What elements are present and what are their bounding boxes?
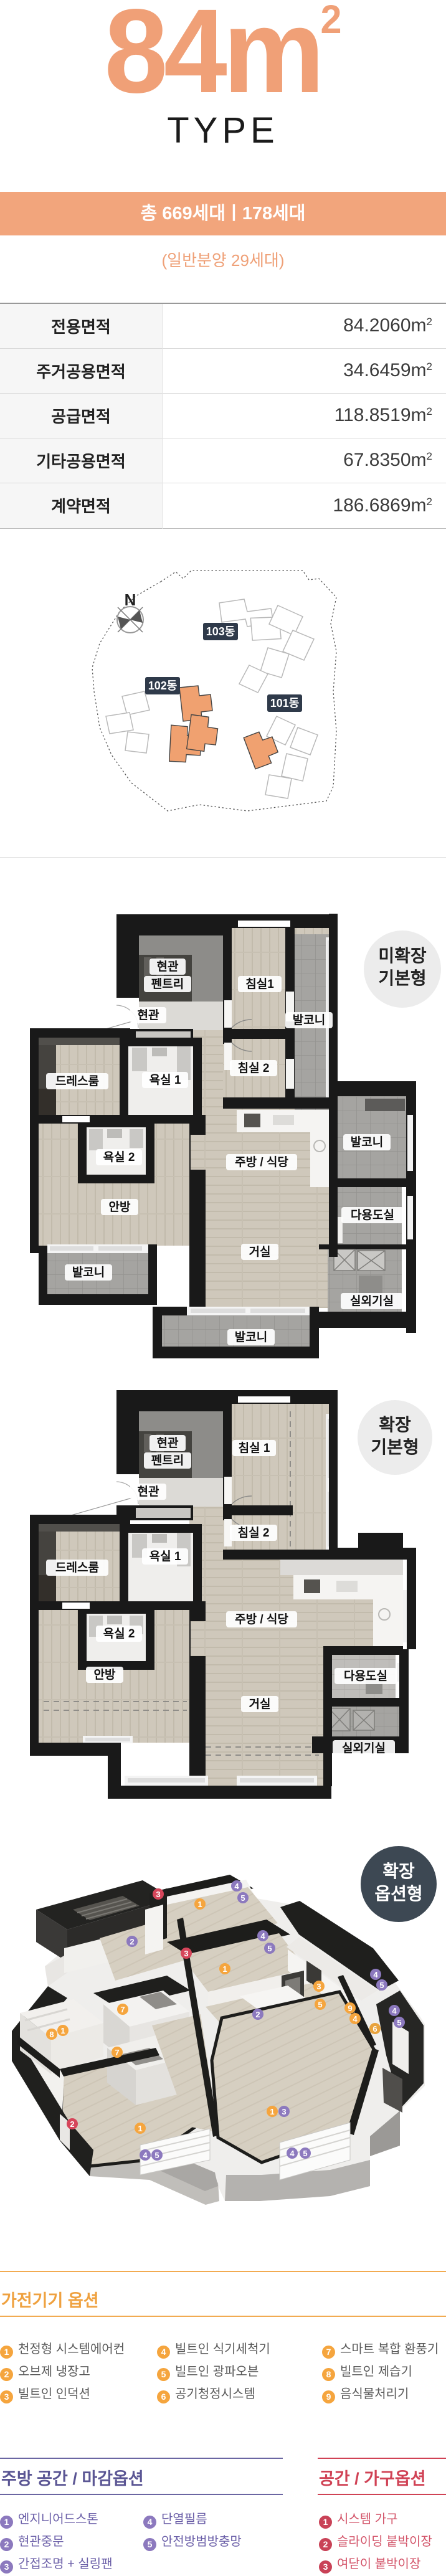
svg-text:실외기실: 실외기실 xyxy=(350,1294,394,1308)
svg-text:현관: 현관 xyxy=(138,1485,159,1499)
svg-text:6: 6 xyxy=(372,2024,377,2034)
svg-text:4: 4 xyxy=(373,1970,378,1979)
svg-text:3: 3 xyxy=(156,1890,160,1899)
svg-text:3: 3 xyxy=(282,2107,286,2116)
svg-text:101동: 101동 xyxy=(270,697,300,709)
svg-text:거실: 거실 xyxy=(249,1697,271,1711)
svg-text:1: 1 xyxy=(138,2124,142,2133)
svg-text:4: 4 xyxy=(290,2149,295,2158)
svg-text:2: 2 xyxy=(130,1937,134,1946)
svg-text:발코니: 발코니 xyxy=(72,1266,105,1279)
svg-text:1: 1 xyxy=(60,2026,65,2035)
svg-text:5: 5 xyxy=(267,1944,272,1953)
svg-text:침실 1: 침실 1 xyxy=(239,1441,270,1455)
svg-text:드레스룸: 드레스룸 xyxy=(55,1561,99,1574)
svg-text:침실 2: 침실 2 xyxy=(238,1061,270,1075)
svg-text:확장: 확장 xyxy=(382,1862,415,1881)
svg-text:8: 8 xyxy=(49,2030,54,2039)
svg-text:7: 7 xyxy=(115,2048,119,2057)
svg-text:발코니: 발코니 xyxy=(235,1330,267,1344)
svg-text:욕실 1: 욕실 1 xyxy=(149,1073,181,1087)
svg-text:5: 5 xyxy=(303,2149,307,2158)
svg-text:안방: 안방 xyxy=(94,1668,116,1682)
svg-text:확장: 확장 xyxy=(379,1415,411,1434)
svg-text:1: 1 xyxy=(270,2107,274,2116)
svg-text:1: 1 xyxy=(222,1964,227,1974)
svg-text:102동: 102동 xyxy=(148,680,178,692)
svg-text:4: 4 xyxy=(234,1882,239,1891)
svg-text:5: 5 xyxy=(379,1981,384,1990)
svg-text:3: 3 xyxy=(184,1949,188,1958)
svg-text:욕실 2: 욕실 2 xyxy=(103,1627,135,1641)
svg-text:현관: 현관 xyxy=(157,1436,179,1450)
svg-text:발코니: 발코니 xyxy=(351,1135,383,1149)
svg-text:펜트리: 펜트리 xyxy=(151,1454,184,1467)
svg-text:현관: 현관 xyxy=(138,1008,159,1022)
svg-text:4: 4 xyxy=(392,2006,397,2015)
svg-text:4: 4 xyxy=(260,1931,265,1941)
svg-text:발코니: 발코니 xyxy=(293,1013,325,1027)
svg-text:기본형: 기본형 xyxy=(378,968,426,988)
svg-text:1: 1 xyxy=(197,1900,202,1909)
svg-text:주방 / 식당: 주방 / 식당 xyxy=(235,1155,288,1169)
svg-text:펜트리: 펜트리 xyxy=(151,977,184,991)
svg-text:욕실 1: 욕실 1 xyxy=(149,1550,181,1563)
svg-text:5: 5 xyxy=(318,2000,322,2009)
svg-text:103동: 103동 xyxy=(206,625,235,638)
svg-text:4: 4 xyxy=(143,2151,148,2160)
svg-text:드레스룸: 드레스룸 xyxy=(55,1074,99,1088)
svg-text:2: 2 xyxy=(70,2119,74,2129)
svg-text:4: 4 xyxy=(353,2014,358,2024)
svg-text:옵션형: 옵션형 xyxy=(374,1884,422,1903)
svg-text:5: 5 xyxy=(154,2151,159,2160)
svg-text:9: 9 xyxy=(348,2004,352,2013)
svg-text:기본형: 기본형 xyxy=(371,1437,419,1457)
svg-text:현관: 현관 xyxy=(157,960,179,973)
svg-text:주방 / 식당: 주방 / 식당 xyxy=(235,1612,288,1626)
svg-text:2: 2 xyxy=(255,2010,260,2019)
svg-text:5: 5 xyxy=(397,2018,401,2027)
svg-text:침실1: 침실1 xyxy=(245,977,274,991)
svg-text:5: 5 xyxy=(240,1893,245,1903)
svg-text:침실 2: 침실 2 xyxy=(238,1526,270,1540)
svg-text:다용도실: 다용도실 xyxy=(351,1208,394,1222)
svg-text:안방: 안방 xyxy=(109,1200,131,1214)
svg-text:다용도실: 다용도실 xyxy=(344,1669,387,1683)
svg-text:3: 3 xyxy=(316,1982,321,1991)
svg-text:7: 7 xyxy=(120,2005,125,2014)
svg-text:거실: 거실 xyxy=(249,1245,271,1259)
svg-text:욕실 2: 욕실 2 xyxy=(103,1150,135,1164)
svg-text:실외기실: 실외기실 xyxy=(342,1741,386,1755)
svg-text:미확장: 미확장 xyxy=(378,946,427,965)
